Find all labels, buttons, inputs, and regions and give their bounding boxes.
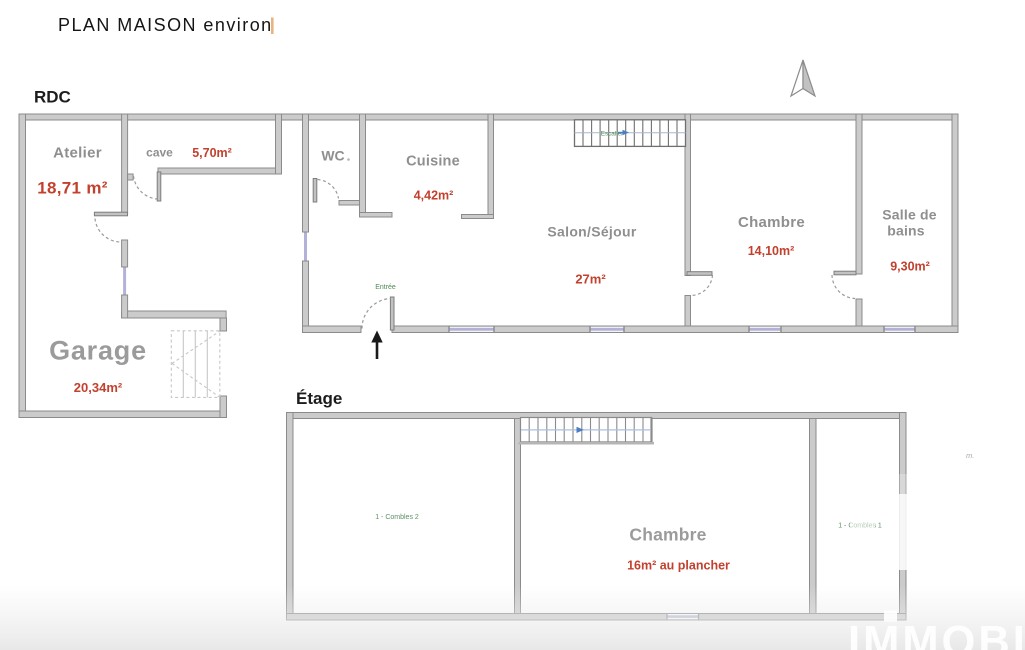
- svg-text:bains: bains: [887, 223, 925, 239]
- svg-text:Étage: Étage: [296, 389, 342, 408]
- svg-text:PLAN MAISON environ: PLAN MAISON environ: [58, 15, 273, 35]
- svg-text:Salon/Séjour: Salon/Séjour: [547, 224, 636, 240]
- svg-text:18,71 m²: 18,71 m²: [37, 179, 107, 198]
- svg-text:WC: WC: [321, 148, 344, 164]
- svg-text:Garage: Garage: [49, 336, 147, 366]
- svg-text:5,70m²: 5,70m²: [192, 146, 232, 160]
- svg-text:Atelier: Atelier: [53, 145, 102, 162]
- svg-text:Chambre: Chambre: [629, 525, 706, 545]
- svg-text:m.: m.: [966, 451, 974, 460]
- svg-text:Salle de: Salle de: [882, 207, 937, 223]
- svg-text:IMMOBILIER: IMMOBILIER: [848, 618, 1025, 650]
- svg-text:cave: cave: [146, 146, 173, 160]
- svg-text:Escalier: Escalier: [601, 130, 623, 137]
- svg-text:4,42m²: 4,42m²: [414, 189, 454, 203]
- svg-text:Entrée: Entrée: [375, 284, 396, 291]
- svg-text:Cuisine: Cuisine: [406, 154, 460, 170]
- svg-text:1 - Combles 2: 1 - Combles 2: [375, 514, 419, 521]
- svg-text:27m²: 27m²: [575, 272, 606, 287]
- svg-text:16m² au plancher: 16m² au plancher: [627, 559, 730, 573]
- svg-text:RDC: RDC: [34, 88, 71, 107]
- svg-text:14,10m²: 14,10m²: [748, 244, 795, 258]
- svg-text:Chambre: Chambre: [738, 214, 805, 231]
- svg-text:9,30m²: 9,30m²: [890, 260, 930, 274]
- svg-text:20,34m²: 20,34m²: [74, 380, 123, 395]
